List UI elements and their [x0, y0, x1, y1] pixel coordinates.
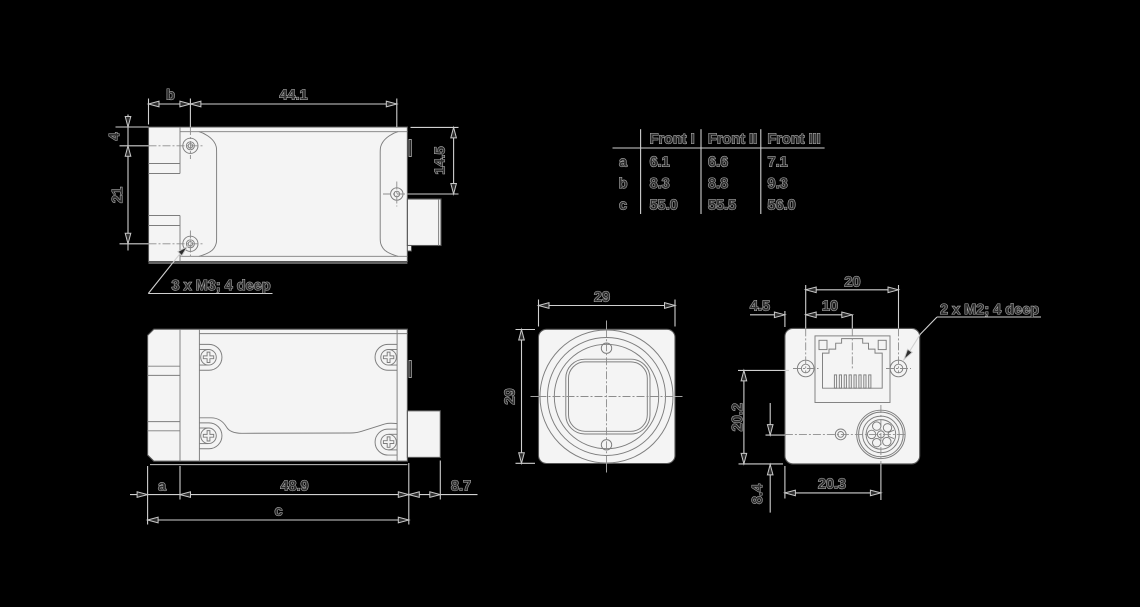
svg-text:4.5: 4.5 — [750, 298, 770, 314]
svg-text:8.8: 8.8 — [708, 176, 728, 192]
svg-text:20.3: 20.3 — [818, 476, 846, 492]
svg-text:c: c — [274, 504, 282, 520]
svg-text:10: 10 — [822, 298, 838, 314]
svg-text:7.1: 7.1 — [768, 154, 788, 170]
svg-text:20.2: 20.2 — [730, 403, 746, 431]
svg-text:55.5: 55.5 — [708, 197, 736, 213]
svg-text:55.0: 55.0 — [650, 197, 678, 213]
svg-text:9.3: 9.3 — [768, 176, 788, 192]
svg-text:29: 29 — [594, 290, 610, 306]
svg-text:48.9: 48.9 — [280, 479, 308, 495]
svg-text:b: b — [619, 176, 628, 192]
svg-text:56.0: 56.0 — [768, 197, 796, 213]
svg-text:14.5: 14.5 — [433, 146, 449, 174]
svg-text:6.1: 6.1 — [650, 154, 670, 170]
svg-text:44.1: 44.1 — [279, 88, 307, 104]
svg-text:6.6: 6.6 — [708, 154, 728, 170]
svg-text:c: c — [619, 197, 627, 213]
svg-text:20: 20 — [844, 275, 860, 291]
svg-text:a: a — [158, 479, 167, 495]
svg-text:Front III: Front III — [768, 131, 821, 147]
svg-text:21: 21 — [110, 187, 126, 203]
svg-text:29: 29 — [503, 388, 519, 404]
svg-text:3 x M3; 4 deep: 3 x M3; 4 deep — [172, 278, 271, 294]
svg-text:Front I: Front I — [650, 131, 695, 147]
svg-text:a: a — [619, 154, 628, 170]
svg-text:8.4: 8.4 — [750, 484, 766, 504]
svg-text:8.3: 8.3 — [650, 176, 670, 192]
svg-text:4: 4 — [107, 132, 123, 140]
svg-text:b: b — [166, 88, 175, 104]
svg-text:Front II: Front II — [708, 131, 757, 147]
svg-text:2 x M2; 4 deep: 2 x M2; 4 deep — [940, 302, 1039, 318]
svg-text:8.7: 8.7 — [451, 479, 471, 495]
